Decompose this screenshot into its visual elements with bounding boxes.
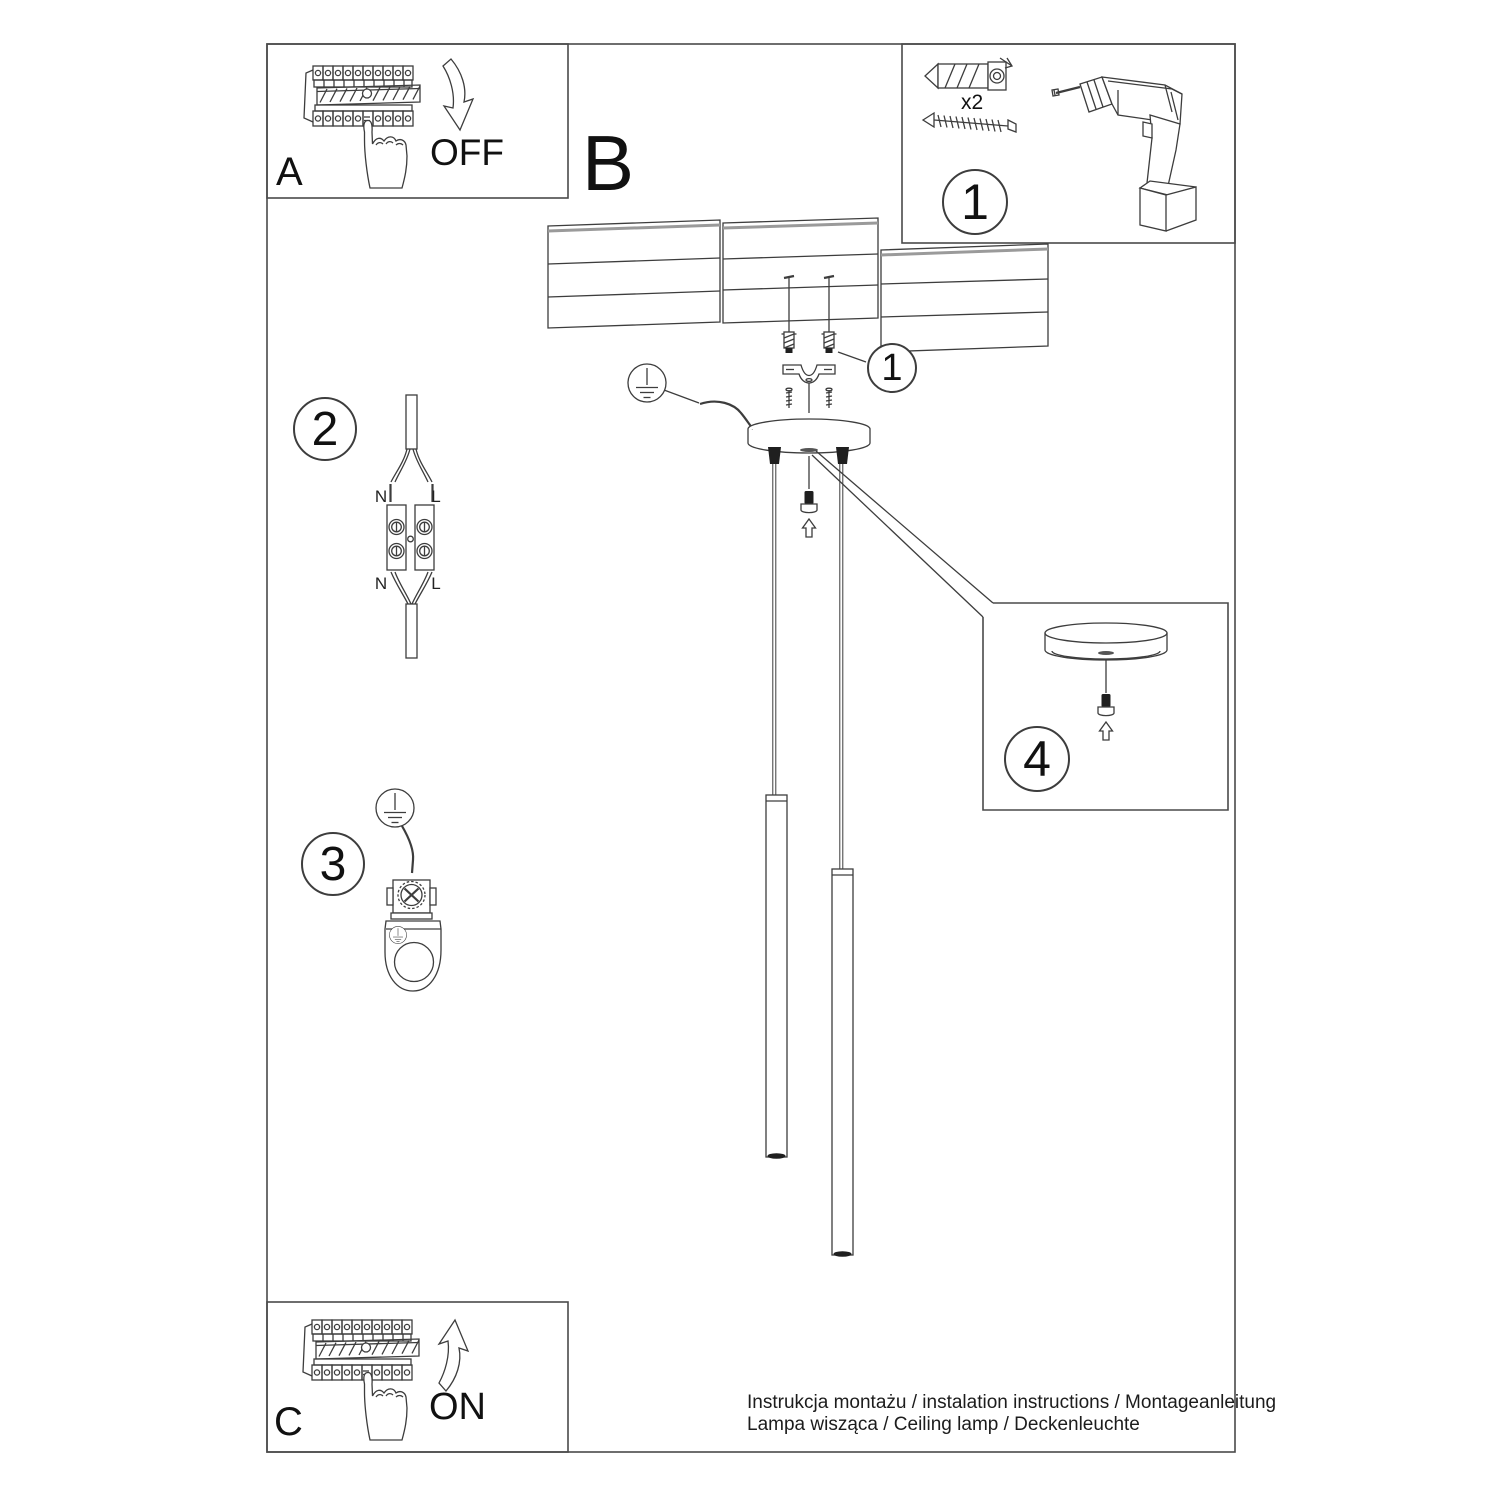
pendant-tube-left xyxy=(766,795,787,1159)
screw-icon xyxy=(923,113,1016,132)
strain-relief-fastener-icon xyxy=(1098,694,1114,716)
callout-leader-line xyxy=(838,352,866,362)
off-label: OFF xyxy=(430,134,504,171)
wall-plug-icon xyxy=(925,58,1012,90)
strain-relief-fastener-icon xyxy=(801,491,817,513)
terminal-block-illustration xyxy=(387,395,434,658)
step-number-wiring: 2 xyxy=(293,397,357,461)
wall-plug-icon xyxy=(822,332,837,353)
drill-icon xyxy=(1052,77,1196,231)
up-arrow-icon xyxy=(803,519,816,537)
anchor-quantity-label: x2 xyxy=(961,92,983,113)
pointing-hand-icon xyxy=(364,121,407,189)
on-arrow-icon xyxy=(439,1320,468,1391)
cord-grip-icon xyxy=(836,447,849,464)
terminal-label-l-bottom: L xyxy=(431,574,440,594)
off-arrow-icon xyxy=(443,59,473,130)
step-number-canopy: 4 xyxy=(1004,726,1070,792)
footer: Instrukcja montażu / instalation instruc… xyxy=(747,1392,1276,1435)
canopy-detail-illustration xyxy=(1045,623,1167,693)
canopy-slot xyxy=(800,448,818,452)
terminal-label-l-top: L xyxy=(431,487,440,507)
ground-symbol-icon xyxy=(389,926,406,943)
instruction-sheet: A OFF B C ON x2 N L N L 1 1 2 3 4 Instru… xyxy=(0,0,1500,1500)
footer-line-2: Lampa wisząca / Ceiling lamp / Deckenleu… xyxy=(747,1414,1276,1436)
pointing-hand-icon xyxy=(364,1373,407,1441)
terminal-label-n-bottom: N xyxy=(375,574,387,594)
terminal-label-n-top: N xyxy=(375,487,387,507)
earth-wire-illustration xyxy=(664,390,753,429)
on-label: ON xyxy=(429,1388,486,1426)
callout-leader-line xyxy=(812,455,983,617)
mounting-bracket-icon xyxy=(783,365,835,383)
ground-symbol-icon xyxy=(628,364,666,402)
ceiling-illustration xyxy=(548,218,1048,352)
canopy-screws-illustration xyxy=(786,383,832,413)
wall-plug-icon xyxy=(782,332,797,353)
ground-symbol-icon xyxy=(376,789,414,827)
step-number-grounding: 3 xyxy=(301,832,365,896)
section-b-label: B xyxy=(582,124,634,202)
step-number-tools: 1 xyxy=(942,169,1008,235)
instruction-artwork xyxy=(0,0,1500,1500)
panel-a-label: A xyxy=(276,152,303,192)
up-arrow-icon xyxy=(1100,722,1113,740)
ground-terminal-illustration xyxy=(385,826,441,991)
step-number-anchors: 1 xyxy=(867,343,917,393)
cord-grip-icon xyxy=(768,447,781,464)
pendant-tube-right xyxy=(832,869,853,1257)
panel-c-label: C xyxy=(274,1402,303,1442)
footer-line-1: Instrukcja montażu / instalation instruc… xyxy=(747,1392,1276,1414)
